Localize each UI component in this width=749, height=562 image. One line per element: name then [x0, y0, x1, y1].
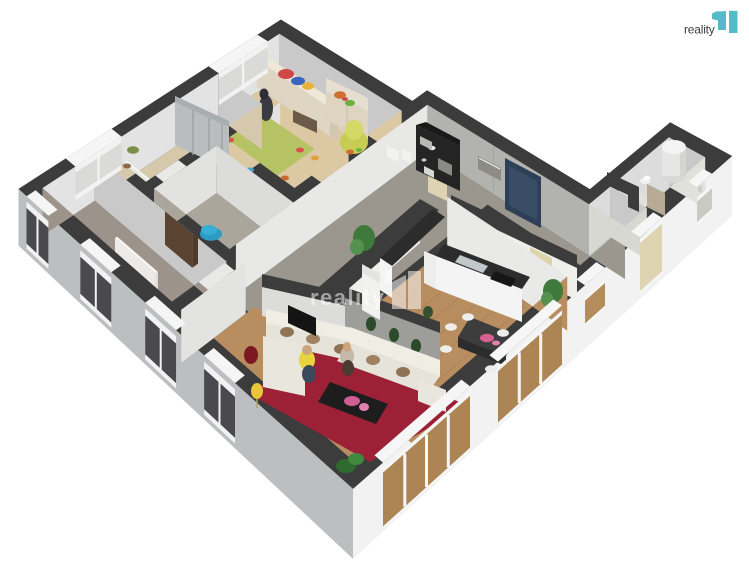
- svg-text:reality: reality: [684, 23, 715, 37]
- svg-text:reality: reality: [310, 285, 385, 310]
